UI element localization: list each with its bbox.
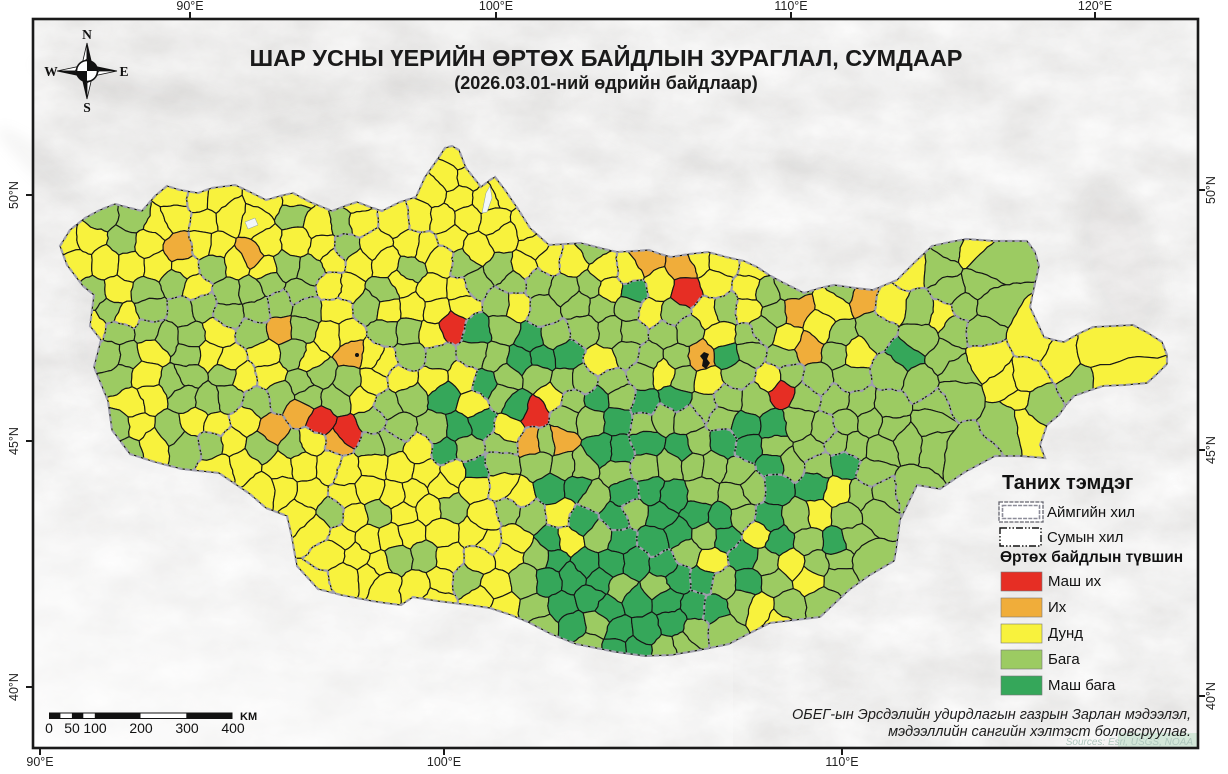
svg-text:Сумын хил: Сумын хил xyxy=(1047,529,1123,546)
svg-text:N: N xyxy=(82,27,92,42)
svg-text:45°N: 45°N xyxy=(1204,436,1218,464)
svg-text:ОБЕГ-ын Эрсдэлийн удирдлагын г: ОБЕГ-ын Эрсдэлийн удирдлагын газрын Зарл… xyxy=(792,707,1191,723)
svg-text:S: S xyxy=(83,100,91,115)
svg-text:(2026.03.01-ний өдрийн байдлаа: (2026.03.01-ний өдрийн байдлаар) xyxy=(454,73,758,93)
svg-text:Өртөх байдлын түвшин: Өртөх байдлын түвшин xyxy=(1000,549,1183,566)
svg-text:Их: Их xyxy=(1048,599,1067,616)
svg-text:Бага: Бага xyxy=(1048,651,1080,668)
svg-text:100°E: 100°E xyxy=(479,0,513,13)
svg-text:50: 50 xyxy=(64,720,80,736)
svg-text:45°N: 45°N xyxy=(7,427,21,455)
svg-text:110°E: 110°E xyxy=(774,0,807,13)
svg-text:W: W xyxy=(44,64,58,79)
svg-text:40°N: 40°N xyxy=(1204,682,1218,710)
svg-text:400: 400 xyxy=(221,720,245,736)
svg-text:100°E: 100°E xyxy=(427,755,461,769)
svg-text:Аймгийн хил: Аймгийн хил xyxy=(1047,504,1135,521)
svg-text:Дунд: Дунд xyxy=(1048,625,1083,642)
svg-text:90°E: 90°E xyxy=(26,755,53,769)
svg-text:50°N: 50°N xyxy=(7,181,21,209)
svg-text:300: 300 xyxy=(175,720,199,736)
svg-text:Маш их: Маш их xyxy=(1048,573,1102,590)
svg-text:Маш бага: Маш бага xyxy=(1048,677,1116,694)
svg-text:E: E xyxy=(119,64,128,79)
svg-text:0: 0 xyxy=(45,720,53,736)
svg-text:Таних тэмдэг: Таних тэмдэг xyxy=(1002,472,1133,494)
svg-text:110°E: 110°E xyxy=(825,755,858,769)
svg-text:мэдээллийн сангийн хэлтэст бол: мэдээллийн сангийн хэлтэст боловсруулав. xyxy=(888,724,1191,740)
svg-text:50°N: 50°N xyxy=(1204,176,1218,204)
svg-text:ШАР УСНЫ ҮЕРИЙН ӨРТӨХ БАЙДЛЫН: ШАР УСНЫ ҮЕРИЙН ӨРТӨХ БАЙДЛЫН ЗУРАГЛАЛ, … xyxy=(250,44,963,71)
svg-text:200: 200 xyxy=(129,720,153,736)
svg-text:120°E: 120°E xyxy=(1078,0,1112,13)
svg-text:90°E: 90°E xyxy=(176,0,203,13)
svg-text:100: 100 xyxy=(83,720,107,736)
svg-text:40°N: 40°N xyxy=(7,673,21,701)
